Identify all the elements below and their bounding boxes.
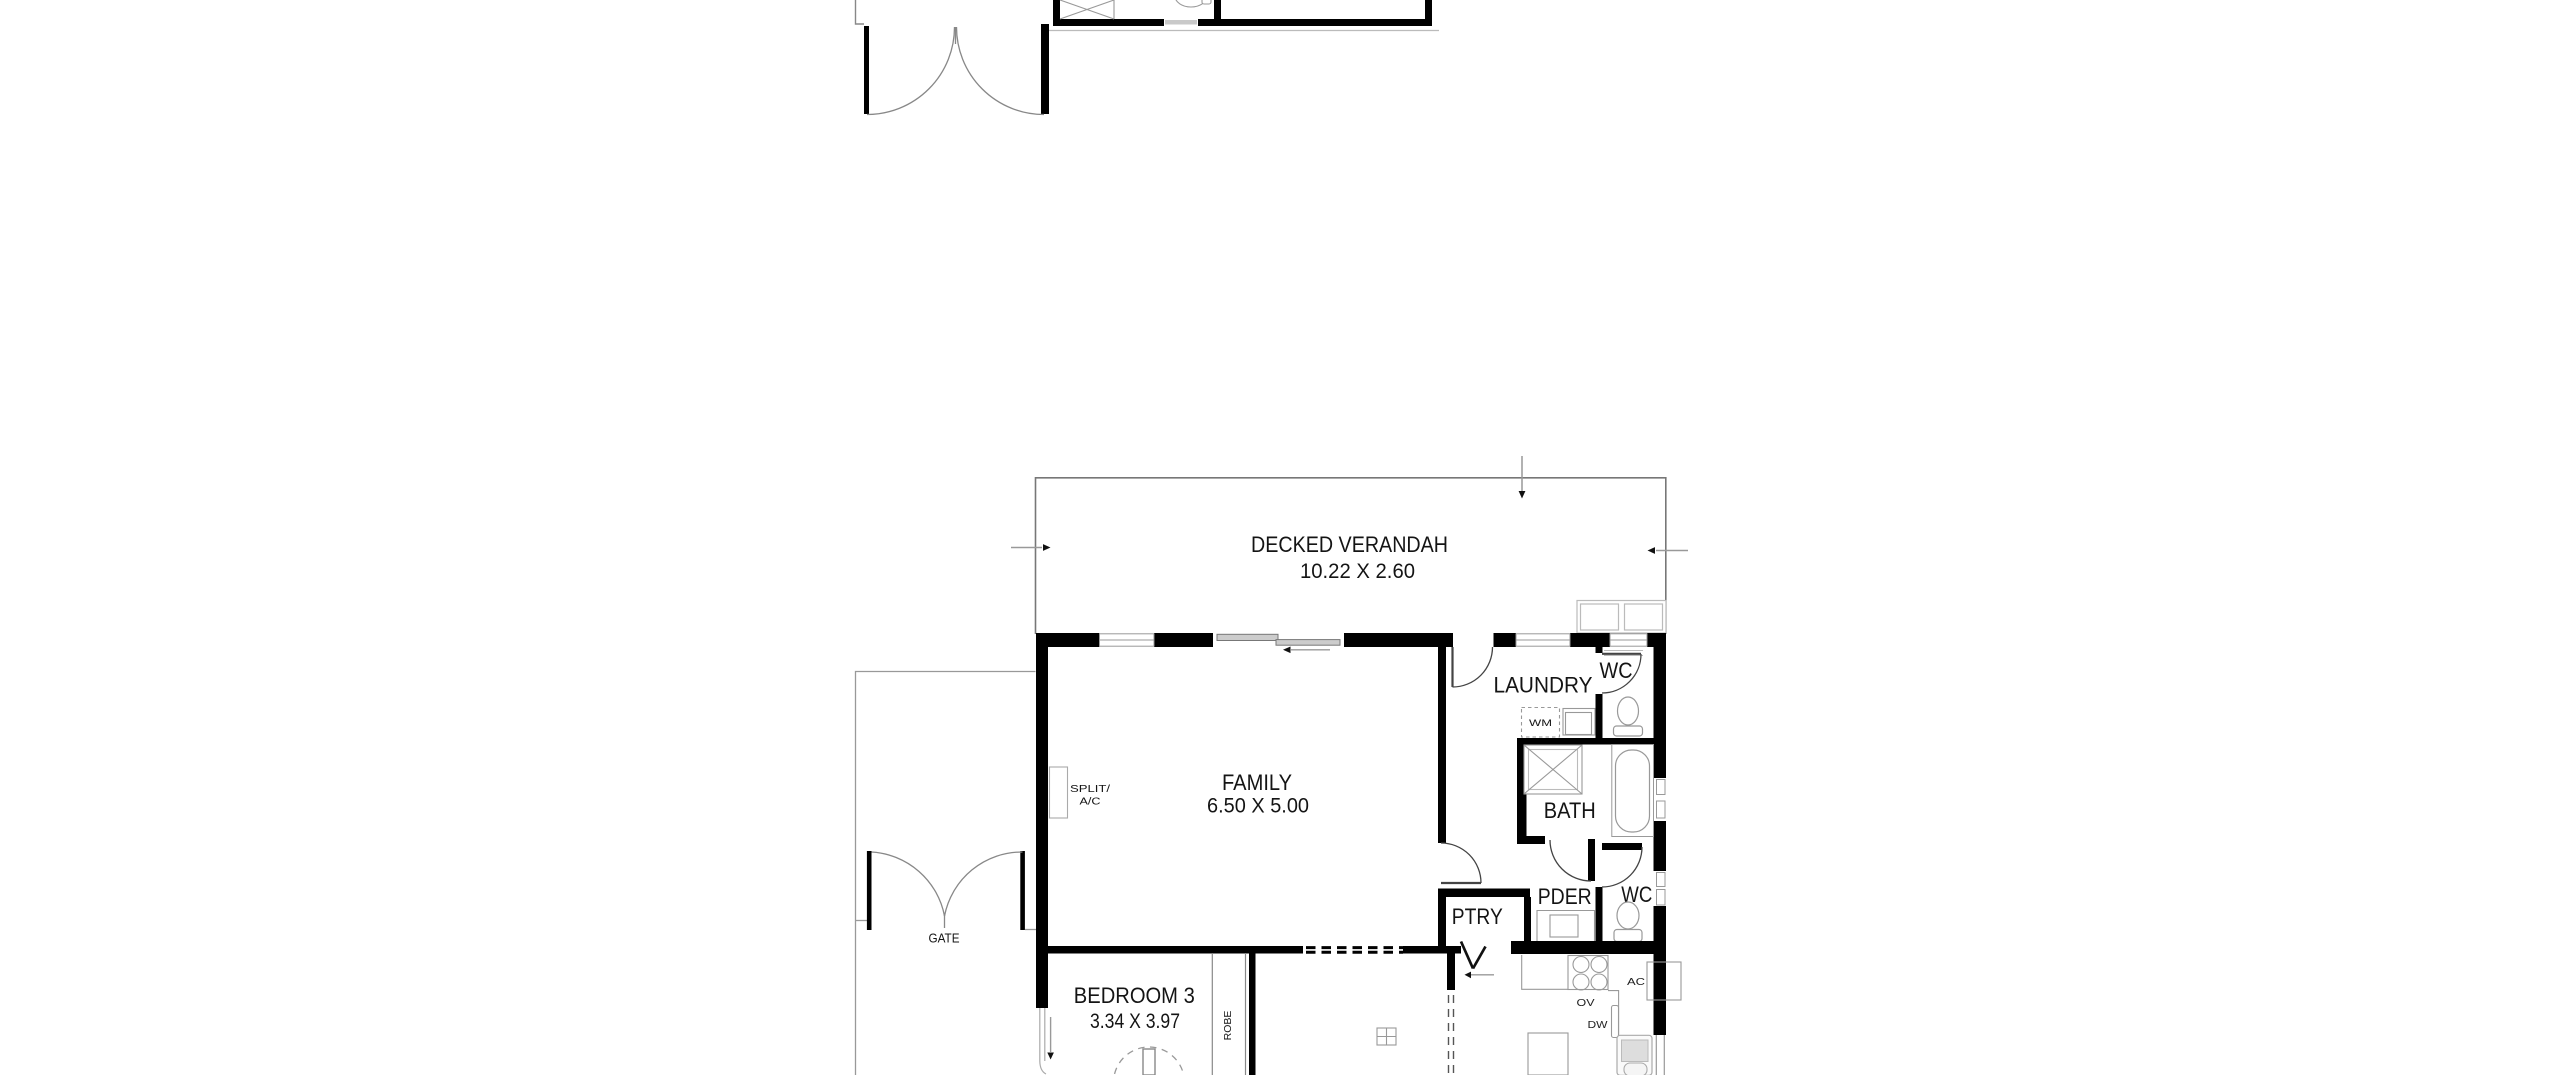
svg-text:PDER: PDER bbox=[1538, 884, 1592, 909]
svg-text:BATH: BATH bbox=[1544, 798, 1596, 823]
svg-text:BEDROOM 3: BEDROOM 3 bbox=[1074, 983, 1195, 1008]
svg-text:AC: AC bbox=[1627, 976, 1646, 988]
svg-text:A/C: A/C bbox=[1080, 797, 1101, 808]
svg-text:DW: DW bbox=[1588, 1019, 1608, 1031]
svg-text:OV: OV bbox=[1577, 997, 1595, 1009]
svg-text:DECKED VERANDAH: DECKED VERANDAH bbox=[1251, 532, 1448, 557]
svg-text:FAMILY: FAMILY bbox=[1222, 770, 1292, 795]
svg-text:10.22 X 2.60: 10.22 X 2.60 bbox=[1300, 560, 1415, 583]
svg-text:GATE: GATE bbox=[929, 931, 960, 946]
svg-text:ROBE: ROBE bbox=[1222, 1011, 1234, 1041]
svg-text:6.50 X 5.00: 6.50 X 5.00 bbox=[1207, 795, 1309, 818]
svg-text:3.34 X 3.97: 3.34 X 3.97 bbox=[1090, 1010, 1180, 1033]
svg-text:SPLIT/: SPLIT/ bbox=[1070, 784, 1110, 795]
svg-text:WM: WM bbox=[1529, 718, 1552, 728]
svg-text:WC: WC bbox=[1600, 658, 1633, 683]
svg-text:PTRY: PTRY bbox=[1452, 904, 1503, 929]
svg-text:LAUNDRY: LAUNDRY bbox=[1494, 673, 1593, 698]
